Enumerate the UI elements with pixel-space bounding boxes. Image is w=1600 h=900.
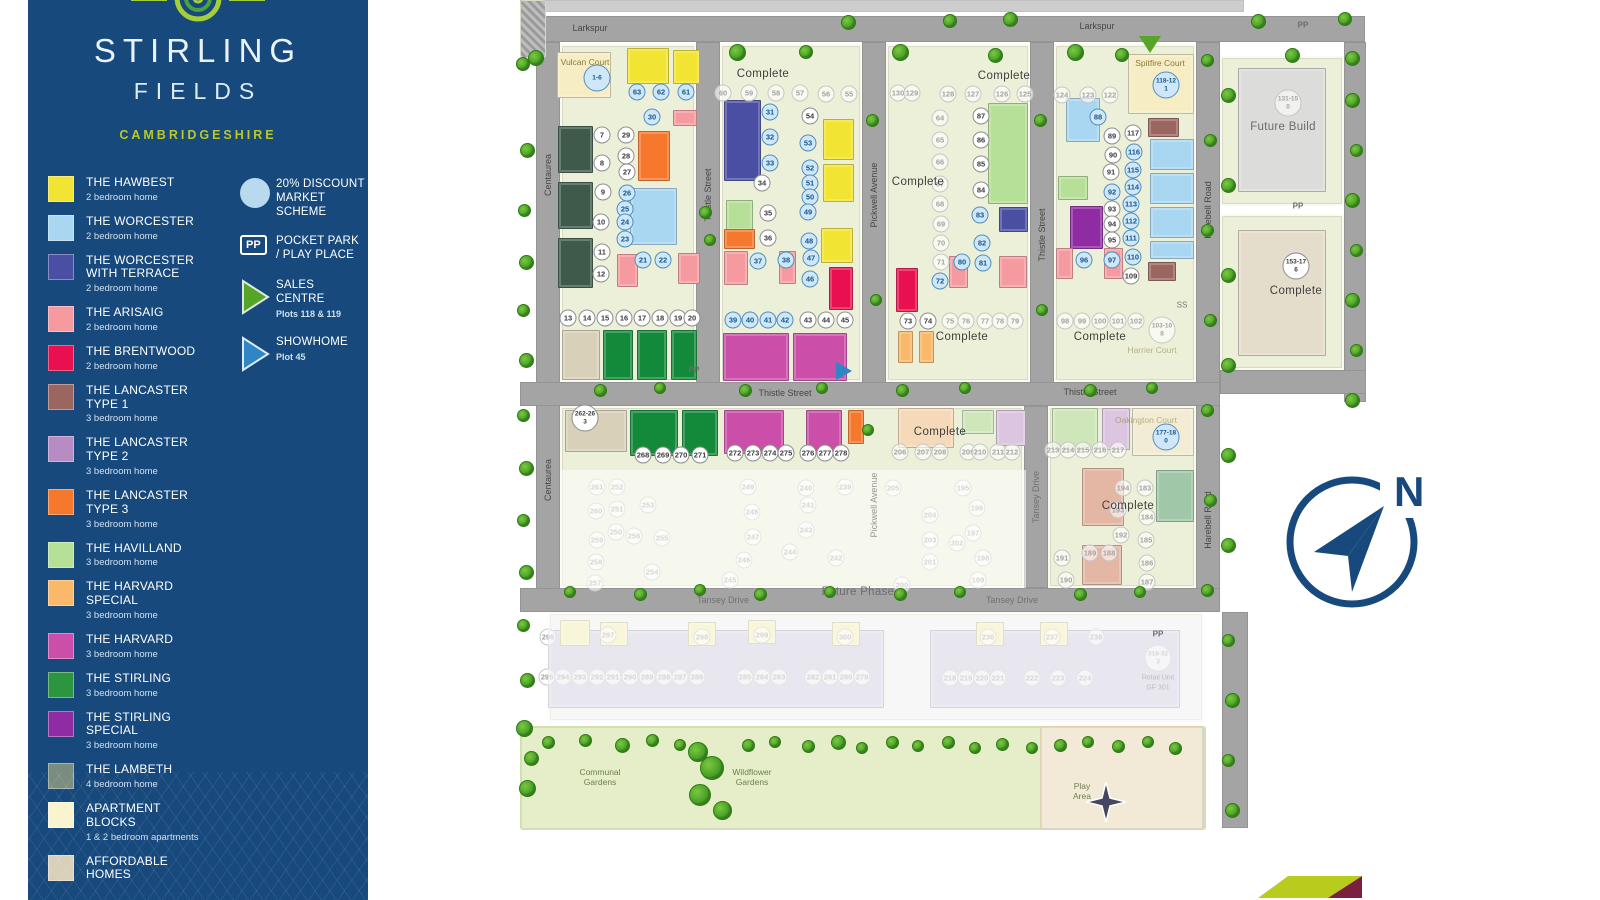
- building-haw: [821, 228, 853, 263]
- plot-54[interactable]: 54: [802, 108, 819, 125]
- svg-text:N: N: [1394, 468, 1424, 515]
- building-ari: [673, 110, 697, 126]
- building-bre: [896, 268, 918, 312]
- map-label: Harrier Court: [1127, 345, 1176, 355]
- plot-31[interactable]: 31: [762, 104, 779, 121]
- plot-64[interactable]: 64: [932, 110, 949, 127]
- plot-41[interactable]: 41: [760, 312, 777, 329]
- plot-39[interactable]: 39: [725, 312, 742, 329]
- building-sti: [637, 330, 667, 380]
- building-lam: [558, 182, 593, 229]
- plot-7[interactable]: 7: [594, 127, 611, 144]
- tree-icon: [674, 739, 686, 751]
- map-label: Pickwell Avenue: [869, 163, 879, 228]
- map-label: Thistle Street: [1037, 208, 1047, 261]
- plot-123[interactable]: 123: [1080, 87, 1097, 104]
- building-lan2P: [996, 410, 1026, 446]
- plot-24[interactable]: 24: [617, 214, 634, 231]
- tree-icon: [1222, 754, 1235, 767]
- plot-85[interactable]: 85: [973, 156, 990, 173]
- plot-16[interactable]: 16: [616, 310, 633, 327]
- map-label: Tansey Drive: [986, 595, 1038, 605]
- tree-icon: [1074, 588, 1087, 601]
- tree-icon: [520, 143, 535, 158]
- showhome-marker-icon[interactable]: [836, 362, 852, 380]
- plot-86[interactable]: 86: [973, 132, 990, 149]
- tree-icon: [517, 514, 530, 527]
- future-phase-fade-overlay: [560, 470, 1026, 588]
- plot-94[interactable]: 94: [1104, 216, 1121, 233]
- plot-44[interactable]: 44: [818, 312, 835, 329]
- tree-icon: [754, 588, 767, 601]
- building-ari: [678, 253, 700, 284]
- road: [520, 0, 1244, 12]
- plot-40[interactable]: 40: [742, 312, 759, 329]
- building-lam: [558, 238, 593, 288]
- plot-56[interactable]: 56: [818, 86, 835, 103]
- plot-61[interactable]: 61: [678, 84, 695, 101]
- building-haw: [823, 164, 854, 202]
- tree-icon: [1134, 586, 1146, 598]
- plot-83[interactable]: 83: [972, 207, 989, 224]
- tree-icon: [517, 409, 530, 422]
- tree-icon: [654, 382, 666, 394]
- tree-icon: [1350, 244, 1363, 257]
- plot-192[interactable]: 192: [1113, 527, 1130, 544]
- plot-100[interactable]: 100: [1092, 313, 1109, 330]
- plot-72[interactable]: 72: [932, 273, 949, 290]
- plot-206[interactable]: 206: [892, 444, 909, 461]
- tree-icon: [769, 736, 781, 748]
- map-label: Gardens: [736, 777, 769, 787]
- map-label: Complete: [737, 68, 789, 80]
- tree-icon: [988, 48, 1003, 63]
- tree-icon: [1112, 740, 1125, 753]
- plot-103-108[interactable]: 103-108: [1149, 317, 1176, 344]
- plot-216[interactable]: 216: [1092, 442, 1109, 459]
- compass-north-icon: N: [1280, 462, 1440, 627]
- building-ari: [999, 256, 1027, 288]
- plot-274[interactable]: 274: [762, 445, 779, 462]
- building-wor: [630, 188, 677, 245]
- building-ari: [724, 251, 748, 285]
- tree-icon: [542, 736, 555, 749]
- plot-20[interactable]: 20: [684, 310, 701, 327]
- plot-43[interactable]: 43: [800, 312, 817, 329]
- site-plan-map: 1-66362613029282726252423212278910111213…: [0, 0, 1600, 900]
- building-lan1: [1148, 262, 1176, 281]
- plot-268[interactable]: 268: [635, 447, 652, 464]
- plot-14[interactable]: 14: [579, 310, 596, 327]
- tree-icon: [1345, 193, 1360, 208]
- plot-92[interactable]: 92: [1104, 184, 1121, 201]
- map-label: Complete: [1074, 331, 1126, 343]
- plot-272[interactable]: 272: [727, 445, 744, 462]
- plot-125[interactable]: 125: [1017, 86, 1034, 103]
- plot-21[interactable]: 21: [635, 252, 652, 269]
- plot-91[interactable]: 91: [1103, 164, 1120, 181]
- plot-73[interactable]: 73: [900, 313, 917, 330]
- plot-210[interactable]: 210: [972, 444, 989, 461]
- tree-icon: [856, 742, 868, 754]
- tree-icon: [516, 57, 530, 71]
- tree-icon: [1221, 268, 1236, 283]
- plot-15[interactable]: 15: [597, 310, 614, 327]
- plot-177-180[interactable]: 177-180: [1153, 424, 1180, 451]
- tree-icon: [528, 50, 544, 66]
- building-wor: [1150, 173, 1194, 204]
- tree-icon: [816, 382, 828, 394]
- plot-55[interactable]: 55: [841, 86, 858, 103]
- tree-icon: [1003, 12, 1018, 27]
- tree-icon: [564, 586, 576, 598]
- tree-icon: [1338, 12, 1352, 26]
- map-label: Future Build: [1250, 121, 1316, 133]
- building-hsp: [898, 331, 913, 363]
- plot-113[interactable]: 113: [1123, 196, 1140, 213]
- plot-271[interactable]: 271: [692, 447, 709, 464]
- plot-191[interactable]: 191: [1054, 550, 1071, 567]
- tree-icon: [518, 204, 531, 217]
- plot-35[interactable]: 35: [760, 205, 777, 222]
- plot-10[interactable]: 10: [593, 214, 610, 231]
- plot-277[interactable]: 277: [817, 445, 834, 462]
- plot-60[interactable]: 60: [715, 85, 732, 102]
- tree-icon: [1082, 736, 1094, 748]
- plot-59[interactable]: 59: [741, 85, 758, 102]
- tree-icon: [1084, 384, 1097, 397]
- plot-188[interactable]: 188: [1101, 545, 1118, 562]
- site-plan-page: STIRLING FIELDS CAMBRIDGESHIRE THE HAWBE…: [0, 0, 1600, 900]
- plot-70[interactable]: 70: [933, 235, 950, 252]
- building-bre: [829, 267, 853, 310]
- tree-icon: [1146, 382, 1158, 394]
- plot-87[interactable]: 87: [973, 108, 990, 125]
- plot-115[interactable]: 115: [1125, 162, 1142, 179]
- tree-icon: [1036, 304, 1048, 316]
- tree-icon: [1067, 44, 1084, 61]
- plot-57[interactable]: 57: [792, 85, 809, 102]
- tree-icon: [1221, 538, 1236, 553]
- building-haw: [627, 48, 669, 84]
- plot-111[interactable]: 111: [1123, 230, 1140, 247]
- building-lan3: [638, 131, 670, 181]
- tree-icon: [1115, 48, 1129, 62]
- building-aff: [562, 330, 600, 380]
- plot-63[interactable]: 63: [629, 84, 646, 101]
- plot-208[interactable]: 208: [932, 444, 949, 461]
- plot-75[interactable]: 75: [942, 313, 959, 330]
- tree-icon: [1225, 693, 1240, 708]
- tree-icon: [634, 588, 647, 601]
- building-hav: [988, 103, 1028, 204]
- plot-194[interactable]: 194: [1115, 480, 1132, 497]
- plot-13[interactable]: 13: [560, 310, 577, 327]
- map-label: Centaurea: [543, 459, 553, 501]
- plot-190[interactable]: 190: [1058, 572, 1075, 589]
- plot-185[interactable]: 185: [1138, 532, 1155, 549]
- plot-127[interactable]: 127: [965, 86, 982, 103]
- plot-49[interactable]: 49: [800, 204, 817, 221]
- tree-icon: [886, 736, 899, 749]
- tree-icon: [1201, 224, 1214, 237]
- tree-icon: [870, 294, 882, 306]
- map-label: Centaurea: [543, 154, 553, 196]
- map-label: Communal: [579, 767, 620, 777]
- building-hav: [1058, 176, 1088, 200]
- tree-icon: [954, 586, 966, 598]
- plot-71[interactable]: 71: [933, 254, 950, 271]
- plot-116[interactable]: 116: [1126, 144, 1143, 161]
- tree-icon: [739, 384, 752, 397]
- tree-icon: [942, 736, 955, 749]
- plot-62[interactable]: 62: [653, 84, 670, 101]
- plot-17[interactable]: 17: [634, 310, 651, 327]
- plot-114[interactable]: 114: [1125, 179, 1142, 196]
- plot-95[interactable]: 95: [1104, 232, 1121, 249]
- plot-34[interactable]: 34: [754, 175, 771, 192]
- plot-76[interactable]: 76: [958, 313, 975, 330]
- plot-269[interactable]: 269: [655, 447, 672, 464]
- building-lan1: [1148, 118, 1179, 137]
- plot-117[interactable]: 117: [1125, 125, 1142, 142]
- map-label: Complete: [978, 70, 1030, 82]
- tree-icon: [646, 734, 659, 747]
- map-label: Complete: [892, 176, 944, 188]
- plot-69[interactable]: 69: [933, 216, 950, 233]
- plot-129[interactable]: 129: [904, 85, 921, 102]
- tree-icon: [896, 384, 909, 397]
- plot-89[interactable]: 89: [1104, 128, 1121, 145]
- tree-icon: [866, 114, 879, 127]
- plot-74[interactable]: 74: [920, 313, 937, 330]
- building-ssp: [1070, 206, 1103, 249]
- plot-23[interactable]: 23: [617, 231, 634, 248]
- tree-icon: [519, 255, 534, 270]
- plot-88[interactable]: 88: [1090, 109, 1107, 126]
- plot-47[interactable]: 47: [803, 250, 820, 267]
- plot-270[interactable]: 270: [673, 447, 690, 464]
- map-label: GF 301: [1146, 685, 1169, 692]
- plot-37[interactable]: 37: [750, 253, 767, 270]
- plot-96[interactable]: 96: [1076, 252, 1093, 269]
- tree-icon: [1350, 344, 1363, 357]
- plot-98[interactable]: 98: [1057, 313, 1074, 330]
- tree-icon: [1225, 803, 1240, 818]
- map-label: Pickwell Avenue: [869, 473, 879, 538]
- tree-icon: [841, 15, 856, 30]
- plot-29[interactable]: 29: [618, 127, 635, 144]
- tree-icon: [517, 304, 530, 317]
- tree-icon: [1285, 48, 1300, 63]
- plot-48[interactable]: 48: [801, 233, 818, 250]
- tree-icon: [1204, 314, 1217, 327]
- building-wor: [1150, 207, 1194, 238]
- tree-icon: [831, 735, 846, 750]
- tree-icon: [1142, 736, 1154, 748]
- tree-icon: [1169, 742, 1182, 755]
- tree-icon: [1221, 448, 1236, 463]
- play-area-star-icon: [1086, 782, 1126, 827]
- tree-icon: [1026, 742, 1038, 754]
- plot-12[interactable]: 12: [593, 266, 610, 283]
- tree-icon: [1345, 51, 1360, 66]
- plot-189[interactable]: 189: [1082, 545, 1099, 562]
- tree-icon: [1345, 93, 1360, 108]
- tree-icon: [689, 784, 711, 806]
- plot-183[interactable]: 183: [1137, 480, 1154, 497]
- plot-273[interactable]: 273: [745, 445, 762, 462]
- building-harv: [723, 333, 789, 381]
- tree-icon: [943, 14, 957, 28]
- plot-18[interactable]: 18: [652, 310, 669, 327]
- plot-207[interactable]: 207: [915, 444, 932, 461]
- plot-9[interactable]: 9: [595, 184, 612, 201]
- building-stiP: [1156, 470, 1194, 522]
- plot-8[interactable]: 8: [594, 155, 611, 172]
- plot-80[interactable]: 80: [954, 254, 971, 271]
- plot-109[interactable]: 109: [1123, 268, 1140, 285]
- plot-53[interactable]: 53: [800, 135, 817, 152]
- tree-icon: [1201, 404, 1214, 417]
- tree-icon: [996, 738, 1009, 751]
- plot-58[interactable]: 58: [768, 85, 785, 102]
- plot-102[interactable]: 102: [1128, 313, 1145, 330]
- plot-32[interactable]: 32: [762, 129, 779, 146]
- plot-66[interactable]: 66: [932, 154, 949, 171]
- map-label: SS: [1177, 301, 1188, 310]
- tree-icon: [1350, 144, 1363, 157]
- plot-27[interactable]: 27: [619, 164, 636, 181]
- plot-81[interactable]: 81: [975, 255, 992, 272]
- tree-icon: [894, 588, 907, 601]
- tree-icon: [1251, 14, 1266, 29]
- tree-icon: [969, 742, 981, 754]
- plot-186[interactable]: 186: [1139, 555, 1156, 572]
- plot-90[interactable]: 90: [1105, 147, 1122, 164]
- map-label: Tansey Drive: [1031, 471, 1041, 523]
- plot-118-121[interactable]: 118-121: [1153, 72, 1180, 99]
- tree-icon: [700, 756, 724, 780]
- building-wor: [1150, 139, 1194, 170]
- road: [536, 42, 560, 602]
- map-label: Complete: [1102, 500, 1154, 512]
- plot-217[interactable]: 217: [1110, 442, 1127, 459]
- plot-97[interactable]: 97: [1104, 252, 1121, 269]
- tree-icon: [1222, 634, 1235, 647]
- plot-275[interactable]: 275: [778, 445, 795, 462]
- plot-122[interactable]: 122: [1102, 87, 1119, 104]
- plot-82[interactable]: 82: [974, 235, 991, 252]
- building-sti: [603, 330, 633, 380]
- plot-22[interactable]: 22: [655, 252, 672, 269]
- plot-1-6[interactable]: 1-6: [584, 65, 611, 92]
- road: [1220, 370, 1366, 394]
- tree-icon: [799, 45, 813, 59]
- plot-215[interactable]: 215: [1075, 442, 1092, 459]
- map-label: PP: [1293, 202, 1304, 211]
- building-wt: [999, 207, 1028, 232]
- plot-30[interactable]: 30: [644, 109, 661, 126]
- building-wt: [724, 100, 761, 181]
- map-label: Retail Unit: [1142, 675, 1174, 682]
- tree-icon: [1221, 358, 1236, 373]
- plot-99[interactable]: 99: [1074, 313, 1091, 330]
- map-label: PP: [1153, 630, 1164, 639]
- tree-icon: [824, 586, 836, 598]
- plot-33[interactable]: 33: [762, 155, 779, 172]
- tree-icon: [959, 382, 971, 394]
- tree-icon: [862, 424, 874, 436]
- building-ari: [1056, 248, 1073, 279]
- tree-icon: [713, 801, 732, 820]
- plot-68[interactable]: 68: [932, 196, 949, 213]
- plot-38[interactable]: 38: [778, 252, 795, 269]
- tree-icon: [1204, 494, 1217, 507]
- building-lan3: [724, 229, 755, 249]
- plot-124[interactable]: 124: [1054, 87, 1071, 104]
- plot-126[interactable]: 126: [994, 86, 1011, 103]
- plot-46[interactable]: 46: [802, 271, 819, 288]
- plot-153-176[interactable]: 153-176: [1283, 253, 1310, 280]
- building-hsp: [919, 331, 934, 363]
- tree-icon: [615, 738, 630, 753]
- future-phase-fade-overlay: [548, 612, 1206, 725]
- plot-11[interactable]: 11: [594, 244, 611, 261]
- plot-36[interactable]: 36: [760, 230, 777, 247]
- sales-centre-marker-icon[interactable]: [1139, 36, 1161, 53]
- map-label: Thistle Street: [758, 388, 811, 398]
- plot-79[interactable]: 79: [1007, 313, 1024, 330]
- plot-42[interactable]: 42: [777, 312, 794, 329]
- map-label: PP: [1298, 21, 1309, 30]
- map-label: Complete: [914, 426, 966, 438]
- plot-26[interactable]: 26: [619, 185, 636, 202]
- tree-icon: [912, 740, 924, 752]
- plot-278[interactable]: 278: [833, 445, 850, 462]
- plot-262-263[interactable]: 262-263: [572, 405, 599, 432]
- plot-65[interactable]: 65: [932, 132, 949, 149]
- tree-icon: [517, 619, 530, 632]
- builder-brandmark-icon: [1258, 872, 1378, 900]
- plot-84[interactable]: 84: [973, 182, 990, 199]
- tree-icon: [1201, 584, 1214, 597]
- tree-icon: [694, 584, 706, 596]
- tree-icon: [1054, 739, 1067, 752]
- tree-icon: [1201, 54, 1214, 67]
- plot-112[interactable]: 112: [1123, 213, 1140, 230]
- tree-icon: [1221, 178, 1236, 193]
- map-label: Oakington Court: [1115, 415, 1177, 425]
- plot-276[interactable]: 276: [800, 445, 817, 462]
- map-label: Complete: [936, 331, 988, 343]
- plot-101[interactable]: 101: [1110, 313, 1127, 330]
- tree-icon: [579, 734, 592, 747]
- map-label: Wildflower: [732, 767, 771, 777]
- plot-110[interactable]: 110: [1125, 249, 1142, 266]
- tree-icon: [594, 384, 607, 397]
- tree-icon: [1034, 114, 1047, 127]
- tree-icon: [519, 461, 534, 476]
- plot-212[interactable]: 212: [1004, 444, 1021, 461]
- plot-128[interactable]: 128: [940, 86, 957, 103]
- building-haw: [673, 50, 700, 84]
- tree-icon: [524, 751, 539, 766]
- plot-45[interactable]: 45: [837, 312, 854, 329]
- tree-icon: [1345, 393, 1360, 408]
- plot-131-150[interactable]: 131-150: [1275, 90, 1302, 117]
- plot-28[interactable]: 28: [618, 148, 635, 165]
